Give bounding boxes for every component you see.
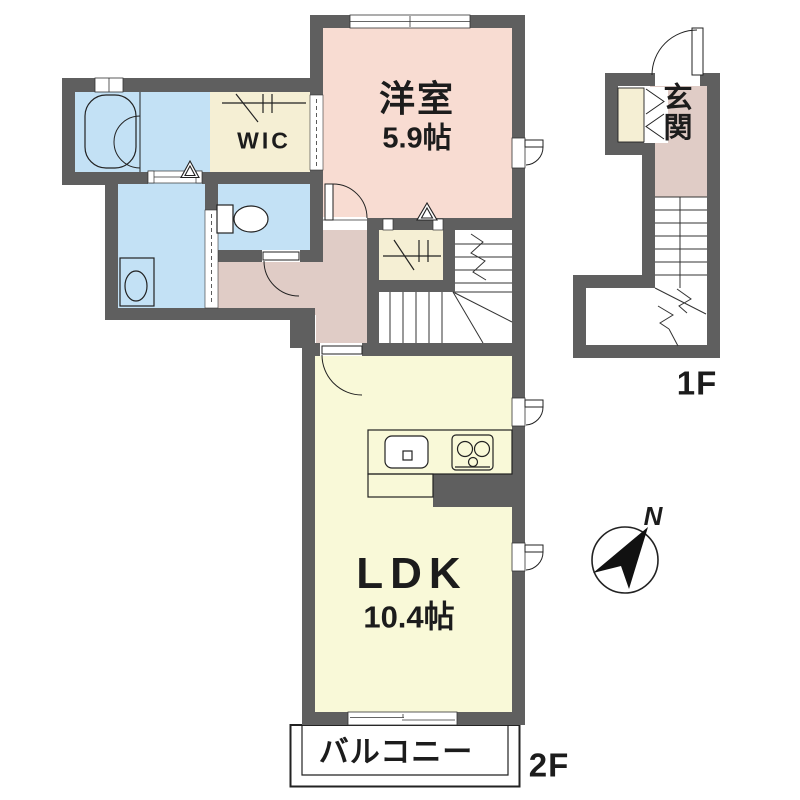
kitchen-sink bbox=[385, 436, 428, 468]
washroom-floor bbox=[110, 178, 212, 314]
shoe-closet bbox=[618, 88, 644, 142]
casement-window-1 bbox=[512, 138, 525, 168]
casement-window-2 bbox=[512, 398, 525, 426]
kitchen-partition-wall bbox=[433, 474, 512, 507]
closet-jamb-right bbox=[433, 219, 443, 230]
compass-north-label: N bbox=[644, 503, 663, 529]
ldk-label: LDK bbox=[356, 552, 467, 596]
closet-jamb-left bbox=[383, 219, 393, 230]
stairs-1f bbox=[652, 197, 710, 290]
western-room-door-leaf bbox=[325, 184, 333, 220]
casement-leaf-3 bbox=[525, 545, 543, 552]
compass bbox=[592, 527, 658, 593]
balcony-label: バルコニー bbox=[319, 738, 473, 768]
ldk-floor bbox=[305, 345, 522, 722]
casement-leaf-2 bbox=[525, 400, 543, 407]
wic-label: WIC bbox=[237, 130, 291, 153]
stairs-2f-lower bbox=[375, 288, 515, 348]
floor-2f-label: 2F bbox=[529, 749, 570, 782]
entrance-door-leaf bbox=[692, 28, 703, 75]
toilet-bowl bbox=[234, 206, 268, 232]
toilet-tank bbox=[217, 205, 233, 233]
casement-window-3 bbox=[512, 543, 525, 571]
toilet-door-leaf bbox=[263, 252, 299, 260]
floor-1f-label: 1F bbox=[677, 367, 718, 400]
hallway-floor bbox=[210, 255, 322, 315]
entrance-label: 玄関 bbox=[662, 84, 694, 145]
floor-plan: 洋室 5.9帖 WIC LDK 10.4帖 バルコニー 玄関 1F 2F N bbox=[0, 0, 800, 800]
stairs-1f-landing bbox=[583, 288, 710, 348]
balcony-sliding-window bbox=[348, 712, 457, 725]
western-room-label: 洋室 bbox=[379, 81, 455, 117]
western-room-size: 5.9帖 bbox=[382, 125, 451, 154]
ldk-door-leaf bbox=[322, 346, 362, 354]
casement-leaf-1 bbox=[525, 140, 543, 147]
ldk-size: 10.4帖 bbox=[363, 602, 454, 633]
